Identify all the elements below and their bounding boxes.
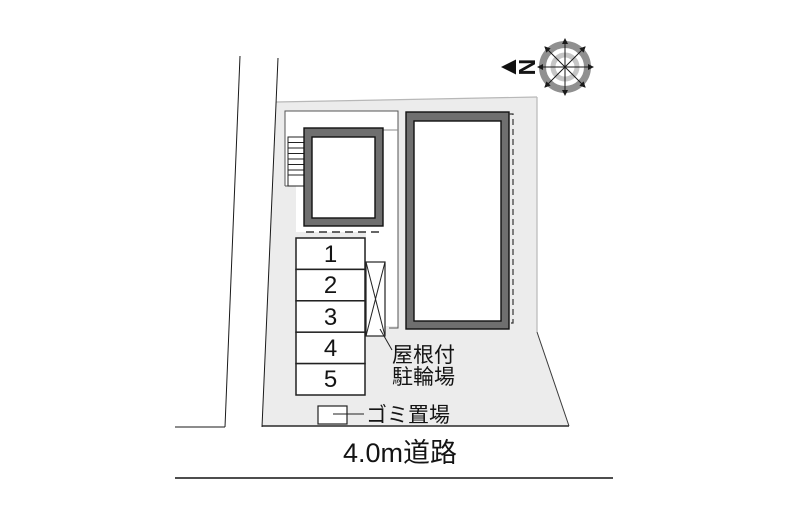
road-label: 4.0m道路 [343, 438, 457, 468]
boundary-line-west-outer [225, 56, 240, 427]
bicycle-shed-label-line1: 屋根付 [392, 344, 455, 367]
stairs [288, 137, 306, 186]
trash-label: ゴミ置場 [366, 404, 450, 427]
bicycle-shed-label-line2: 駐輪場 [392, 366, 455, 389]
parking-space-5-label: 5 [324, 366, 337, 393]
parking-space-4-label: 4 [324, 335, 337, 362]
north-label: N [514, 59, 540, 76]
site-plan-drawing: 1 2 3 4 5 屋根付 駐輪場 ゴミ置場 4.0m道路 N [0, 0, 786, 524]
parking-space-1-label: 1 [324, 241, 337, 268]
parking-space-3-label: 3 [324, 304, 337, 331]
bicycle-shed [366, 262, 385, 336]
building-large [406, 112, 513, 329]
compass-rose: N [501, 39, 593, 95]
trash-box [318, 406, 347, 424]
site-plan-canvas: 1 2 3 4 5 屋根付 駐輪場 ゴミ置場 4.0m道路 N [0, 0, 786, 524]
building-small [304, 128, 383, 232]
parking-space-2-label: 2 [324, 272, 337, 299]
